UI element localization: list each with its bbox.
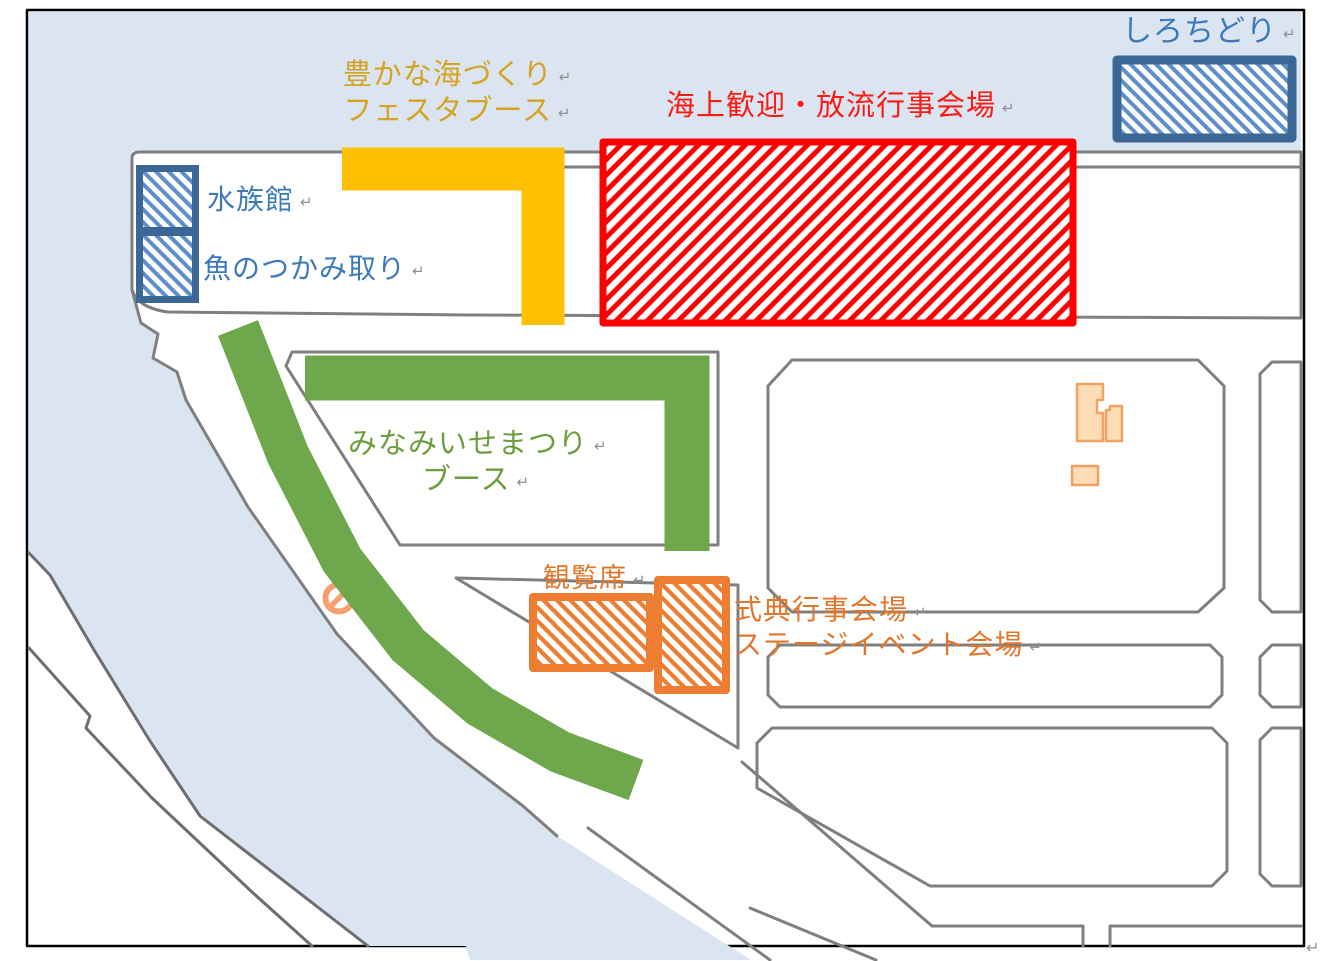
return-mark: ↵ [1029, 639, 1042, 656]
document-return-mark: ↵ [1306, 938, 1319, 958]
shirochidori-label: しろちどり↵ [1122, 13, 1296, 51]
return-mark: ↵ [516, 474, 529, 491]
parcel [1260, 645, 1301, 707]
parcel [1260, 362, 1301, 612]
festa-booth-label: 豊かな海づくり↵ フェスタブース↵ [336, 57, 578, 130]
fish-catching-zone [143, 236, 192, 296]
aquarium-zone [143, 172, 192, 227]
return-mark: ↵ [1283, 26, 1296, 43]
building [1106, 406, 1122, 441]
aquarium-fish-legend [136, 165, 199, 303]
kaijo-venue-label: 海上歓迎・放流行事会場↵ [666, 88, 1015, 124]
spectator-seats-label: 観覧席↵ [543, 562, 646, 596]
return-mark: ↵ [914, 604, 927, 621]
shirochidori-zone [1117, 60, 1292, 138]
building [1077, 384, 1103, 441]
return-mark: ↵ [594, 438, 607, 455]
return-mark: ↵ [412, 263, 425, 280]
aquarium-label: 水族館↵ [207, 182, 313, 217]
minamiise-booth-label: みなみいせまつり↵ ブース↵ [348, 426, 603, 499]
parcel [1260, 728, 1301, 886]
fish-catching-label: 魚のつかみ取り↵ [203, 251, 425, 286]
ceremony-venue-zone [658, 580, 726, 690]
spectator-seats-zone [533, 597, 650, 668]
festival-venue-map-page: 豊かな海づくり↵ フェスタブース↵ 海上歓迎・放流行事会場↵ しろちどり↵ 水族… [0, 0, 1326, 961]
return-mark: ↵ [633, 572, 646, 589]
building [1072, 466, 1098, 485]
return-mark: ↵ [300, 194, 313, 211]
harbor-basemap [0, 0, 1326, 961]
kaijo-venue-zone [603, 142, 1073, 323]
return-mark: ↵ [558, 105, 571, 122]
parcel [768, 360, 1224, 612]
return-mark: ↵ [559, 69, 572, 86]
return-mark: ↵ [1002, 100, 1015, 117]
ceremony-venue-label: 式典行事会場↵ ステージイベント会場↵ [734, 592, 1042, 662]
